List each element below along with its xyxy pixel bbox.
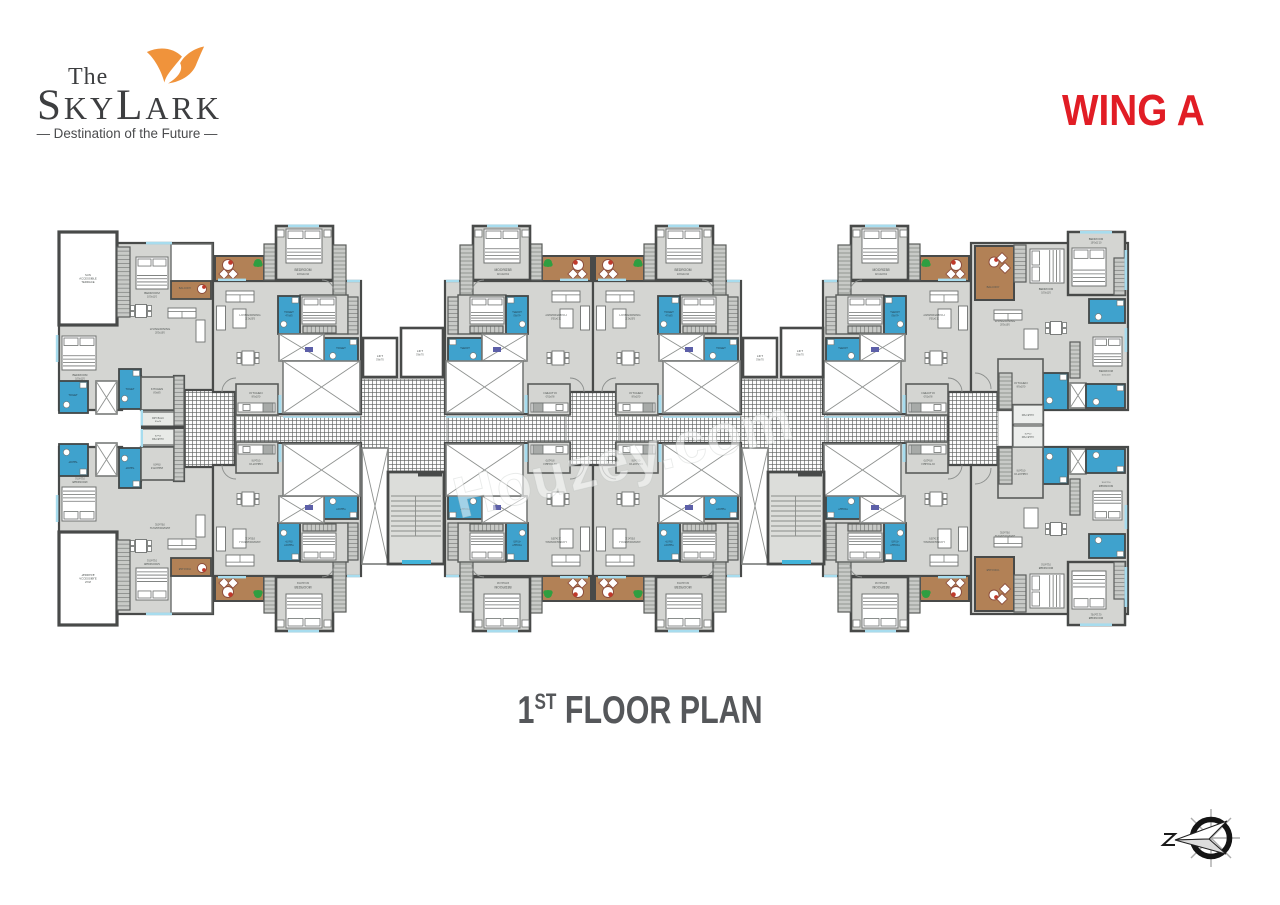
svg-text:TOILET: TOILET: [664, 543, 674, 547]
svg-text:DRY BALC: DRY BALC: [1022, 413, 1035, 416]
svg-text:BEDROOM: BEDROOM: [1039, 566, 1054, 570]
svg-text:TOILET: TOILET: [890, 310, 900, 314]
svg-text:KITCHEN: KITCHEN: [921, 462, 934, 466]
svg-text:10'0x11'0: 10'0x11'0: [147, 295, 158, 298]
svg-text:10'0x11'0: 10'0x11'0: [1101, 374, 1111, 376]
svg-text:TERRACE: TERRACE: [81, 573, 94, 577]
svg-text:BEDROOM: BEDROOM: [73, 480, 89, 484]
svg-text:4'7x8'0: 4'7x8'0: [285, 316, 293, 318]
svg-text:10'0x11'0: 10'0x11'0: [1041, 563, 1051, 565]
svg-text:10'0x11'10: 10'0x11'10: [1091, 242, 1103, 244]
svg-text:8'0x10'0: 8'0x10'0: [632, 396, 641, 399]
svg-text:BEDROOM: BEDROOM: [872, 268, 889, 272]
svg-text:4'7x8'0: 4'7x8'0: [285, 540, 293, 542]
svg-text:5'8x7'0: 5'8x7'0: [376, 359, 384, 362]
svg-text:LIFT: LIFT: [797, 349, 803, 353]
svg-text:KITCHEN: KITCHEN: [249, 462, 262, 466]
svg-text:TOILET: TOILET: [125, 466, 134, 470]
svg-text:11'0x20'5: 11'0x20'5: [625, 318, 636, 321]
svg-text:8'0x4'0: 8'0x4'0: [155, 421, 162, 423]
svg-text:DRY BALC: DRY BALC: [152, 417, 164, 420]
svg-text:BEDROOM: BEDROOM: [494, 585, 511, 589]
svg-text:8'0x10'0: 8'0x10'0: [252, 396, 261, 399]
svg-text:TOILET: TOILET: [664, 310, 674, 314]
svg-text:DRY BALC: DRY BALC: [152, 437, 164, 440]
svg-text:10'0x11'10: 10'0x11'10: [496, 272, 509, 276]
svg-text:KITCHEN: KITCHEN: [1014, 472, 1027, 476]
svg-text:LIVING/DINING: LIVING/DINING: [923, 313, 945, 317]
svg-text:BEDROOM: BEDROOM: [1099, 484, 1114, 488]
svg-text:BEDROOM: BEDROOM: [1099, 369, 1114, 373]
svg-text:8'0x10'0: 8'0x10'0: [252, 459, 261, 462]
svg-text:10'0x11'10: 10'0x11'10: [874, 581, 887, 585]
svg-text:TOILET: TOILET: [838, 507, 848, 511]
svg-text:20'5x10'0: 20'5x10'0: [1000, 324, 1010, 326]
svg-text:BEDROOM: BEDROOM: [674, 585, 691, 589]
svg-text:LIFT: LIFT: [417, 349, 423, 353]
svg-text:8'0x10'0: 8'0x10'0: [923, 459, 932, 462]
svg-text:LIVING/DINING: LIVING/DINING: [545, 540, 567, 544]
svg-text:10'0x11'10: 10'0x11'10: [677, 581, 690, 585]
svg-text:BEDROOM: BEDROOM: [1089, 237, 1104, 241]
svg-text:5'8x7'0: 5'8x7'0: [756, 359, 764, 362]
svg-text:BALCONY: BALCONY: [179, 286, 192, 290]
svg-text:TOILET: TOILET: [512, 310, 522, 314]
svg-text:TOILET: TOILET: [512, 543, 522, 547]
svg-text:LIVING/DINING: LIVING/DINING: [619, 313, 641, 317]
svg-text:TOILET: TOILET: [68, 393, 78, 397]
svg-text:TERRACE: TERRACE: [81, 280, 94, 284]
svg-text:LIVING/DINING: LIVING/DINING: [923, 540, 945, 544]
svg-text:BEDROOM: BEDROOM: [1089, 616, 1104, 620]
svg-text:8'0x8'0: 8'0x8'0: [153, 463, 161, 465]
svg-text:DRY BALC: DRY BALC: [1022, 435, 1035, 438]
svg-text:LIVING/DINING: LIVING/DINING: [239, 540, 261, 544]
svg-text:8'0x8'0: 8'0x8'0: [153, 392, 161, 394]
svg-text:KITCHEN: KITCHEN: [151, 387, 163, 391]
svg-text:LIVING/DINING: LIVING/DINING: [150, 327, 171, 331]
svg-text:10'0x11'10: 10'0x11'10: [874, 272, 887, 276]
svg-text:BEDROOM: BEDROOM: [674, 268, 691, 272]
svg-text:KITCHEN: KITCHEN: [151, 466, 163, 470]
svg-text:TOILET: TOILET: [284, 543, 294, 547]
svg-text:10'0x11'0: 10'0x11'0: [147, 559, 158, 562]
svg-text:4'7x8'0: 4'7x8'0: [891, 540, 899, 542]
svg-text:LIVING/DINING: LIVING/DINING: [150, 526, 171, 530]
svg-text:10'0x11'10: 10'0x11'10: [677, 272, 690, 276]
svg-text:KITCHEN: KITCHEN: [1014, 381, 1027, 385]
svg-text:BALCONY: BALCONY: [179, 567, 192, 571]
svg-text:11'0x20'5: 11'0x20'5: [928, 537, 939, 540]
svg-text:BEDROOM: BEDROOM: [872, 585, 889, 589]
svg-text:8'0x4'0: 8'0x4'0: [155, 434, 162, 436]
svg-text:LIFT: LIFT: [757, 354, 763, 358]
svg-text:11'0x20'5: 11'0x20'5: [550, 537, 561, 540]
svg-text:10'0x11'0: 10'0x11'0: [1101, 481, 1111, 483]
svg-text:20'5x10'0: 20'5x10'0: [155, 523, 165, 525]
svg-text:20'5x10'0: 20'5x10'0: [155, 332, 165, 334]
svg-text:BEDROOM: BEDROOM: [294, 268, 311, 272]
svg-text:TOILET: TOILET: [284, 310, 294, 314]
svg-text:10'0x11'10: 10'0x11'10: [1091, 613, 1103, 615]
svg-text:11'0x20'5: 11'0x20'5: [625, 537, 636, 540]
svg-text:LIVING/DINING: LIVING/DINING: [239, 313, 261, 317]
svg-text:TOILET: TOILET: [68, 460, 78, 464]
svg-text:TOILET: TOILET: [890, 543, 900, 547]
svg-text:11'0x20'5: 11'0x20'5: [928, 318, 939, 321]
svg-text:BALCONY: BALCONY: [987, 568, 1000, 572]
svg-text:KITCHEN: KITCHEN: [249, 391, 262, 395]
svg-text:11'0x20'5: 11'0x20'5: [245, 318, 256, 321]
svg-text:KITCHEN: KITCHEN: [543, 391, 556, 395]
svg-text:10'0x11'0: 10'0x11'0: [1041, 292, 1051, 294]
svg-text:5'8x7'0: 5'8x7'0: [416, 354, 424, 357]
svg-text:BEDROOM: BEDROOM: [144, 291, 160, 295]
svg-text:BEDROOM: BEDROOM: [1039, 287, 1054, 291]
svg-text:20'5x10'0: 20'5x10'0: [1000, 531, 1010, 533]
svg-text:8'0x10'0: 8'0x10'0: [545, 396, 554, 399]
svg-text:LIVING/DINING: LIVING/DINING: [545, 313, 567, 317]
svg-text:LIVING/DINING: LIVING/DINING: [619, 540, 641, 544]
svg-text:KITCHEN: KITCHEN: [921, 391, 934, 395]
svg-text:TOILET: TOILET: [125, 387, 134, 391]
svg-text:BEDROOM: BEDROOM: [294, 585, 311, 589]
svg-text:4'7x8'0: 4'7x8'0: [665, 316, 673, 318]
svg-text:BEDROOM: BEDROOM: [494, 268, 511, 272]
svg-text:KITCHEN: KITCHEN: [629, 391, 642, 395]
svg-text:8'0x10'0: 8'0x10'0: [1017, 385, 1026, 388]
svg-text:11'0x20'5: 11'0x20'5: [550, 318, 561, 321]
svg-text:BEDROOM: BEDROOM: [144, 562, 160, 566]
svg-text:BEDROOM: BEDROOM: [73, 373, 89, 377]
svg-text:4'7x8'0: 4'7x8'0: [891, 316, 899, 318]
svg-text:5'8x7'0: 5'8x7'0: [796, 354, 804, 357]
svg-text:BALCONY: BALCONY: [987, 285, 1000, 289]
svg-text:8'0x10'0: 8'0x10'0: [923, 396, 932, 399]
svg-text:LIFT: LIFT: [377, 354, 383, 358]
svg-text:TOILET: TOILET: [336, 507, 346, 511]
svg-text:TOILET: TOILET: [716, 346, 726, 350]
svg-text:TOILET: TOILET: [716, 507, 726, 511]
svg-text:4'7x8'0: 4'7x8'0: [665, 540, 673, 542]
svg-text:4'7x8'0: 4'7x8'0: [513, 540, 521, 542]
svg-text:TOILET: TOILET: [336, 346, 346, 350]
svg-text:8'0x4'0: 8'0x4'0: [1025, 432, 1032, 434]
svg-text:10'0x11'10: 10'0x11'10: [496, 581, 509, 585]
svg-text:8'0x10'0: 8'0x10'0: [1017, 469, 1026, 472]
svg-text:4'7x8'0: 4'7x8'0: [513, 316, 521, 318]
svg-text:TOILET: TOILET: [460, 346, 470, 350]
svg-text:11'0x20'5: 11'0x20'5: [245, 537, 256, 540]
svg-text:10'0x11'10: 10'0x11'10: [297, 581, 310, 585]
svg-text:10'0x11'10: 10'0x11'10: [297, 272, 310, 276]
svg-text:TOILET: TOILET: [838, 346, 848, 350]
